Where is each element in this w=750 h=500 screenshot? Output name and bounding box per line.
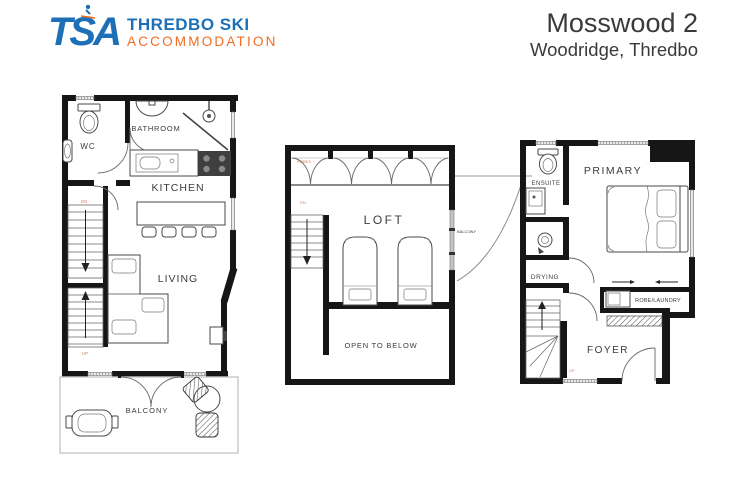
bbq-icon (66, 410, 118, 436)
island-bench (137, 202, 225, 225)
foyer-bench (607, 316, 662, 326)
logo-line2: ACCOMMODATION (127, 34, 278, 50)
balcony-label: BALCONY (126, 406, 169, 415)
shower-icon (526, 188, 545, 214)
loft-label: LOFT (364, 213, 405, 227)
page-subtitle: Woodridge, Thredbo (530, 38, 698, 62)
hot-water-icon (538, 233, 552, 254)
stool-icon (142, 227, 156, 237)
outdoor-chair-icon (196, 413, 218, 437)
loft-balcony-label: BALCONY (457, 229, 476, 234)
wardrobes (291, 151, 449, 185)
living-fixtures (108, 255, 227, 344)
logo-text: THREDBO SKI ACCOMMODATION (127, 15, 278, 50)
stairs-entry (526, 300, 560, 378)
logo-line1: THREDBO SKI (127, 15, 278, 34)
floorplan-sheet: TSA THREDBO SKI ACCOMMODATION Mosswood 2… (0, 0, 750, 500)
living-label: LIVING (158, 273, 198, 285)
header: TSA THREDBO SKI ACCOMMODATION Mosswood 2… (0, 0, 750, 80)
tsa-logo: TSA THREDBO SKI ACCOMMODATION (48, 10, 278, 54)
toilet-icon (78, 104, 100, 111)
plan-entry-floor: PRIMARY ENSUITE DRYING ROBE/LAUNDRY FOYE… (515, 133, 705, 395)
french-door (121, 377, 151, 407)
page-title: Mosswood 2 (530, 8, 698, 38)
plan-loft-floor: LOFT OPEN TO BELOW BALCONY ROBES DN (278, 138, 540, 392)
robes-annotation: ROBES (297, 159, 311, 164)
washing-machine-icon (606, 291, 630, 307)
primary-fixtures (606, 186, 688, 326)
bathroom-fixtures (136, 101, 215, 122)
open-to-below-label: OPEN TO BELOW (344, 341, 417, 350)
stove-icon (198, 151, 231, 176)
stairs-upper (68, 205, 103, 278)
stairs-lower (68, 288, 103, 347)
shower-icon (203, 101, 215, 122)
stool-icon (202, 227, 216, 237)
up-annotation: UP (569, 368, 575, 373)
drying-label: DRYING (531, 274, 559, 281)
stairs-loft (291, 215, 323, 268)
french-door (151, 377, 181, 407)
dn-annotation: DN (81, 199, 88, 204)
skier-icon (78, 4, 98, 22)
stool-icon (162, 227, 176, 237)
wc-fixtures (63, 104, 100, 162)
ensuite-fixtures (526, 149, 558, 254)
foyer-label: FOYER (587, 345, 629, 356)
robe-sliding-arrows (612, 280, 678, 284)
bed-icon (607, 186, 688, 252)
title-block: Mosswood 2 Woodridge, Thredbo (530, 8, 698, 62)
dn-annotation: DN (300, 200, 306, 205)
stool-icon (182, 227, 196, 237)
plan-living-floor: WC BATHROOM KITCHEN LIVING BALCONY DN UP (55, 88, 255, 460)
bathroom-label: BATHROOM (131, 124, 180, 133)
up-annotation: UP (82, 351, 88, 356)
kitchen-label: KITCHEN (151, 182, 204, 194)
robe-laundry-label: ROBE/LAUNDRY (635, 298, 681, 304)
ensuite-label: ENSUITE (532, 181, 561, 187)
wc-label: WC (80, 142, 95, 151)
single-bed-icon (343, 237, 377, 305)
single-bed-icon (398, 237, 432, 305)
sofa-icon (108, 255, 168, 343)
primary-label: PRIMARY (584, 165, 642, 177)
loft-beds (343, 237, 432, 305)
